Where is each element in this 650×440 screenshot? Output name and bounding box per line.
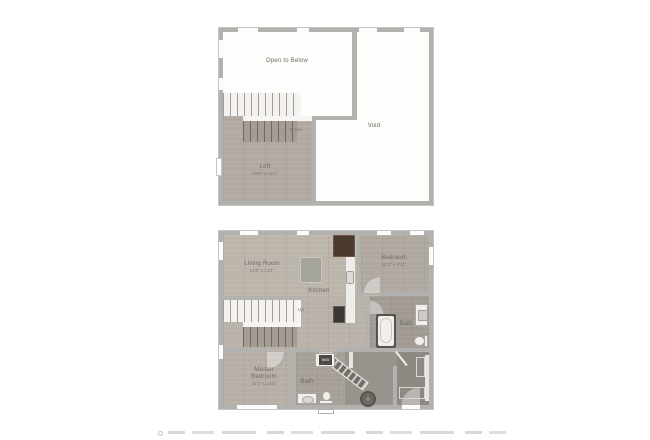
loft-label-group: Loft 15'9" x 16'1" bbox=[235, 164, 295, 177]
bedroom-label-group: Bedroom 12'4" x 9'11" bbox=[364, 255, 424, 268]
bath-right-toilet-tank bbox=[424, 335, 428, 347]
caption-letter-tops bbox=[168, 431, 506, 434]
master-bedroom-dims: 11'2" x 14'5" bbox=[246, 381, 282, 387]
bath-right-label: Bath bbox=[391, 321, 421, 328]
washer-dryer-label: W/D bbox=[322, 357, 330, 362]
master-bedroom-label-group: Master Bedroom 11'2" x 14'5" bbox=[246, 367, 282, 387]
stairs-lower-flight bbox=[243, 327, 297, 347]
bathtub bbox=[376, 314, 396, 348]
wall bbox=[223, 348, 267, 352]
open-to-below-label: Open to Below bbox=[257, 58, 317, 65]
bedroom-label: Bedroom bbox=[364, 255, 424, 262]
wall bbox=[366, 313, 370, 352]
entry-rug bbox=[360, 391, 376, 407]
bedroom-dims: 12'4" x 9'11" bbox=[364, 262, 424, 268]
window bbox=[216, 158, 222, 176]
living-room-label-group: Living Room 13'8" x 13'1" bbox=[232, 261, 292, 274]
floor-plan-canvas: Open to Below Void Loft 15'9" x 16'1" Do… bbox=[0, 0, 650, 440]
void-label: Void bbox=[354, 123, 394, 130]
window bbox=[238, 28, 258, 32]
window bbox=[219, 345, 223, 359]
window bbox=[219, 40, 223, 58]
stairs-up-label: Up bbox=[291, 307, 311, 313]
entry-step bbox=[318, 409, 334, 414]
bath-lower-sink bbox=[302, 396, 314, 404]
refrigerator bbox=[333, 235, 355, 257]
washer-dryer-panel: W/D bbox=[319, 355, 332, 365]
window bbox=[297, 28, 309, 32]
window bbox=[377, 231, 391, 235]
stairs-down-label: Down bbox=[281, 127, 311, 133]
kitchen-island bbox=[300, 257, 322, 283]
closet-shelf-strip bbox=[425, 355, 429, 401]
window bbox=[404, 28, 420, 32]
kitchen-sink bbox=[346, 271, 354, 284]
bath-lower-vanity bbox=[297, 393, 317, 404]
kitchen-counter bbox=[345, 257, 355, 323]
washer-dryer: W/D bbox=[315, 353, 335, 367]
window bbox=[219, 242, 223, 260]
closet-shelf-box bbox=[399, 387, 425, 399]
master-bedroom-label: Master Bedroom bbox=[246, 367, 282, 381]
oven bbox=[333, 306, 345, 323]
kitchen-label: Kitchen bbox=[299, 288, 339, 295]
wall bbox=[316, 116, 357, 120]
living-room-dims: 13'8" x 13'1" bbox=[232, 268, 292, 274]
wall bbox=[352, 28, 357, 120]
bath-lower-label: Bath bbox=[292, 379, 322, 386]
wall bbox=[357, 231, 361, 292]
upper-level-plan: Open to Below Void Loft 15'9" x 16'1" Do… bbox=[219, 28, 433, 205]
bath-lower-toilet-tank bbox=[319, 400, 333, 404]
window bbox=[219, 78, 223, 90]
window bbox=[297, 231, 309, 235]
window bbox=[240, 231, 258, 235]
stairs-upper-flight bbox=[223, 300, 297, 322]
wall bbox=[312, 116, 316, 201]
window bbox=[237, 405, 277, 409]
caption-symbol bbox=[158, 431, 163, 436]
wall bbox=[285, 348, 319, 352]
stairs-upper-flight bbox=[223, 93, 297, 116]
window bbox=[359, 28, 377, 32]
wall bbox=[379, 292, 429, 296]
void-area-lower bbox=[316, 120, 357, 201]
entry-door-gap bbox=[402, 405, 420, 409]
loft-dims: 15'9" x 16'1" bbox=[235, 171, 295, 177]
window bbox=[429, 247, 433, 265]
bath-right-sink bbox=[418, 310, 428, 321]
wall bbox=[349, 352, 353, 368]
main-level-plan: W/D Living Room 13'8" x 13'1" Kitchen Be… bbox=[219, 231, 433, 409]
void-area bbox=[357, 32, 429, 201]
closet-shelf-box bbox=[416, 357, 425, 377]
wall bbox=[393, 366, 397, 405]
window bbox=[410, 231, 424, 235]
living-room-label: Living Room bbox=[232, 261, 292, 268]
cropped-caption bbox=[158, 431, 506, 439]
loft-label: Loft bbox=[235, 164, 295, 171]
